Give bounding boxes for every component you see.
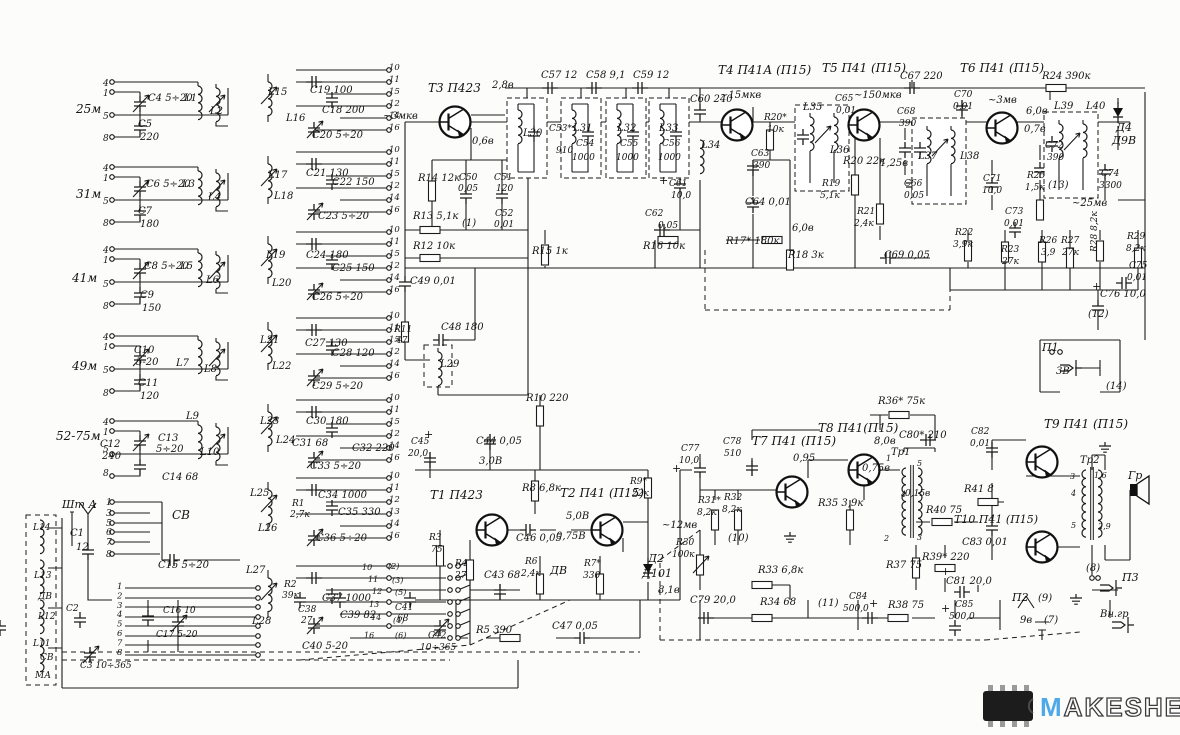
schematic-label: (2) [388,562,399,571]
schematic-label: 3В [1056,366,1070,377]
schematic-label: C22 150 [332,177,375,188]
schematic-label: 16 [389,371,400,381]
schematic-label: ~3мв [988,95,1017,106]
transistor-T10 [1027,532,1058,563]
schematic-label: R19 [821,179,841,189]
schematic-label: L4 [207,192,221,203]
schematic-label: R39* 220 [921,552,970,563]
schematic-label: C57 12 [541,70,577,81]
schematic-label: 0,01 [1127,273,1147,283]
schematic-label: Т7 П41 (П15) [752,434,836,448]
schematic-label: 15 [389,87,400,97]
schematic-label: C2 [66,604,79,614]
schematic-label: C71 [983,174,1001,184]
schematic-label: 1 [103,256,109,266]
schematic-label: C20 5÷20 [312,130,364,141]
schematic-label: 13 [369,600,379,609]
schematic-label: 6,0в [792,223,814,234]
schematic-label: C26 5÷20 [312,292,364,303]
schematic-label: МА [34,671,51,681]
schematic-label: + [941,565,950,578]
schematic-label: L21 [259,335,279,346]
schematic-label: C28 120 [332,348,375,359]
schematic-label: C77 [681,444,700,454]
schematic-label: 180 [140,219,160,230]
schematic-label: C82 [971,427,990,437]
schematic-label: 12 [389,495,400,505]
schematic-label: R29 [1126,232,1146,242]
schematic-label: L33 [658,123,678,134]
schematic-label: 6,0в [1026,106,1048,117]
schematic-label: L1 [183,93,197,104]
schematic-label: L6 [205,275,220,286]
schematic-label: 0,01 [494,220,514,230]
schematic-label: 4 [102,418,109,428]
schematic-label: L2 [209,106,223,117]
schematic-label: 14 [389,273,400,283]
schematic-label: L34 [700,140,720,151]
transistor-T7 [777,477,808,508]
schematic-label: L37 [917,151,938,162]
schematic-label: 5,1к [820,191,840,201]
schematic-label: L20 [271,278,292,289]
schematic-label: L30 [522,128,543,139]
schematic-label: Тр2 [1080,455,1099,466]
schematic-label: 10 [389,393,400,403]
schematic-label: 3 [917,533,922,542]
schematic-label: 12 [389,347,400,357]
schematic-label: R32 [723,493,743,503]
schematic-label: 14 [389,359,400,369]
schematic-label: 4 [1070,489,1076,498]
schematic-label: 8 [103,302,109,312]
schematic-label: (3) [392,576,403,585]
schematic-label: C80* 210 [899,430,947,441]
schematic-label: C63 [751,149,770,159]
schematic-label: C78 [723,437,742,447]
schematic-label: R26 [1038,236,1058,246]
schematic-label: 1 [106,498,112,508]
schematic-label: R15 1к [531,246,568,257]
schematic-label: 16 [364,631,374,640]
schematic-label: + [869,597,878,610]
schematic-label: C49 0,01 [410,276,456,287]
schematic-label: 1 [103,89,109,99]
watermark-text: MAKESHEMA [1040,692,1180,722]
schematic-label: 1000 [616,153,639,163]
schematic-label: 14 [389,519,400,529]
schematic-label: C58 9,1 [586,70,625,81]
schematic-page: 25м31м41м49м52-75мСВДВC4 5÷20L1L2C5220C6… [0,0,1180,735]
schematic-label: C24 180 [306,250,349,261]
schematic-label: 510 [724,449,741,459]
schematic-label: C52 [495,209,514,219]
schematic-label: 4 [102,79,109,89]
schematic-label: L28 [251,616,271,627]
schematic-label: Т8 П41(П15) [818,421,899,435]
schematic-label: L5 [179,261,193,272]
schematic-label: 15 [389,417,400,427]
schematic-label: C61 [669,179,687,189]
schematic-label: R21 [856,207,875,217]
schematic-label: 14 [389,193,400,203]
schematic-label: C72 [1045,141,1064,151]
schematic-label: C46 0,05 [516,533,562,544]
schematic-label: 6 [106,528,112,538]
schematic-label: 5-20 [136,357,159,368]
schematic-label: R9* [629,477,648,487]
schematic-label: (7) [1044,615,1058,626]
schematic-label: 0,05 [458,184,478,194]
schematic-label: 1,5к [1025,183,1045,193]
schematic-label: 41м [71,271,97,285]
schematic-label: C18 200 [322,105,365,116]
schematic-label: 10,0 [671,191,691,201]
schematic-label: ~12мв [662,520,697,531]
schematic-label: 12 [389,99,400,109]
schematic-label: 3300 [1099,181,1122,191]
schematic-label: 16 [389,285,400,295]
schematic-label: Гр [1127,469,1142,482]
schematic-label: 27к [1061,248,1079,258]
schematic-label: C59 12 [633,70,669,81]
schematic-label: 12 [76,542,89,553]
schematic-label: 390 [1047,153,1064,163]
schematic-label: R4 [454,559,468,569]
schematic-label: C13 [158,433,178,444]
transistor-T2 [592,515,623,546]
schematic-label: L17 [267,170,288,181]
schematic-label: Т9 П41 (П15) [1044,417,1128,431]
schematic-label: 10 [362,563,372,572]
schematic-label: Д9В [1111,134,1136,147]
schematic-label: C44 0,05 [476,436,522,447]
schematic-label: + [1092,280,1101,293]
schematic-label: L13 [33,571,52,581]
schematic-label: Т6 П41 (П15) [960,61,1044,75]
schematic-label: 4 [102,333,109,343]
schematic-label: 0,15в [905,489,930,499]
schematic-label: 10÷365 [420,643,456,653]
schematic-label: 13 [389,507,400,517]
schematic-label: (5) [395,588,406,597]
schematic-label: 14 [389,441,400,451]
schematic-label: 14 [371,613,381,622]
schematic-label: R7* [583,559,602,569]
schematic-label: Тр1 [891,447,910,458]
schematic-label: R33 6,8к [757,565,803,576]
schematic-label: R10 220 [525,393,569,404]
schematic-label: 27к [1001,257,1019,267]
schematic-label: 5 [917,459,922,468]
schematic-label: C55 [620,139,639,149]
connector-P3 [1100,580,1122,596]
transistor-T9 [1027,447,1058,478]
schematic-label: L24 [275,435,295,446]
schematic-label: 8 [103,389,109,399]
schematic-label: R41 8 [963,484,994,495]
schematic-label: 1000 [572,153,595,163]
schematic-label: C81 20,0 [946,576,992,587]
schematic-label: (6) [395,631,406,640]
schematic-label: (14) [1106,381,1127,392]
schematic-label: C53* [549,124,572,134]
schematic-label: C17 5-20 [156,630,198,640]
schematic-label: L27 [245,565,266,576]
diode-D4 [1113,102,1123,123]
schematic-label: 0,6в [472,136,494,147]
schematic-label: C84 [849,592,868,602]
schematic-label: C37 1000 [322,593,372,604]
schematic-label: 31м [76,187,101,201]
schematic-label: R34 68 [759,597,796,608]
schematic-label: C64 0,01 [745,197,791,208]
schematic-label: C47 0,05 [552,621,598,632]
schematic-label: L39 [1053,101,1074,112]
schematic-label: 2,9 [1097,522,1111,531]
schematic-label: 39к [282,591,299,601]
schematic-label: 27 [454,571,467,581]
schematic-label: L26 [257,523,278,534]
schematic-label: C50 [459,173,478,183]
schematic-label: R36* 75к [877,396,925,407]
schematic-label: (4) [393,616,404,625]
schematic-label: C70 [954,90,973,100]
schematic-label: ~25мв [1072,198,1107,209]
schematic-label: C16 10 [163,606,196,616]
schematic-label: C68 [897,107,916,117]
schematic-label: 8 [103,469,109,479]
schematic-label: L35 [802,102,822,113]
schematic-label: R20* [763,113,787,123]
schematic-label: L16 [285,113,306,124]
schematic-label: 12 [389,429,400,439]
schematic-label: L18 [273,191,293,202]
schematic-label: C69 0,05 [884,250,930,261]
schematic-label: + [659,174,668,187]
schematic-label: 12 [389,261,400,271]
schematic-label: 5 [103,112,109,122]
schematic-label: R18 3к [787,250,824,261]
schematic-label: 1000 [658,153,681,163]
schematic-label: 10 [389,311,400,321]
schematic-label: R31* [697,496,721,506]
schematic-label: 8 [103,219,109,229]
schematic-label: C31 68 [292,438,328,449]
schematic-label: 1 [103,174,109,184]
schematic-label: 0,01 [970,439,990,449]
schematic-label: Д4 [1115,121,1132,134]
schematic-label: 5 [103,197,109,207]
schematic-label: 5 [1071,521,1076,530]
schematic-label: R25 [1026,171,1046,181]
schematic-label: L14 [32,523,51,533]
schematic-label: C11 [138,378,158,389]
schematic-label: 500,0 [843,604,869,614]
schematic-label: 16 [389,531,400,541]
schematic-label: R1 [291,499,305,509]
schematic-label: C41 [395,603,413,613]
schematic-label: 5 [103,445,109,455]
schematic-label: 4 [102,246,109,256]
schematic-label: L19 [265,250,286,261]
schematic-label: Д2 [647,552,664,565]
schematic-label: 75 [431,545,443,555]
schematic-label: 16 [389,123,400,133]
schematic-label: 14 [389,111,400,121]
schematic-label: R28 8,2к [1090,211,1100,253]
schematic-label: L10 [199,447,220,458]
schematic-label: L23 [259,416,279,427]
schematic-label: 120 [496,184,513,194]
schematic-label: C30 180 [306,416,349,427]
schematic-label: Т5 П41 (П15) [822,61,906,75]
schematic-label: Шт А [61,498,97,511]
schematic-label: R37 75 [885,560,922,571]
schematic-label: 0,05 [904,191,924,201]
schematic-label: СВ [40,653,54,663]
schematic-label: 10к [767,125,784,135]
schematic-label: R23 [1000,245,1020,255]
schematic-label: 11 [389,75,400,85]
transistor-T6 [987,113,1018,144]
schematic-label: L38 [959,151,979,162]
schematic-label: C15 5÷20 [158,560,210,571]
schematic-label: 11 [368,575,378,584]
schematic-canvas: 25м31м41м49м52-75мСВДВC4 5÷20L1L2C5220C6… [0,0,1180,735]
schematic-label: (9) [1038,593,1052,604]
schematic-label: C23 5÷20 [318,211,370,222]
schematic-label: 10,0 [679,456,699,466]
schematic-label: 8 [103,134,109,144]
schematic-label: C14 68 [162,472,198,483]
schematic-label: C73 [1005,207,1024,217]
watermark: MAKESHEMA [983,685,1180,727]
schematic-label: 5 [103,280,109,290]
schematic-label: СВ [172,508,190,522]
schematic-label: C56 [662,139,681,149]
schematic-label: 25м [75,102,101,116]
schematic-label: 16 [389,453,400,463]
schematic-label: ДВ [549,564,567,577]
schematic-label: Т4 П41А (П15) [718,63,812,77]
schematic-label: R12 10к [412,241,455,252]
schematic-label: C7 [138,206,153,217]
schematic-label: 0,7в [1024,124,1046,135]
schematic-label: 500,0 [949,612,975,622]
schematic-label: 15 [389,169,400,179]
schematic-label: R27 [1060,236,1080,246]
schematic-label: Т1 П423 [430,488,483,502]
schematic-label: L40 [1085,101,1106,112]
schematic-label: 1 [103,428,109,438]
schematic-label: П1 [1041,341,1059,354]
schematic-label: 11 [389,237,400,247]
schematic-label: 0,01 [1004,219,1024,229]
schematic-label: 8,1в [658,585,680,596]
schematic-label: 3 [106,509,112,519]
schematic-label: (13) [1048,180,1069,191]
schematic-label: Т3 П423 [428,81,481,95]
schematic-label: 1,6 [1094,471,1107,480]
schematic-label: R22 [954,228,974,238]
schematic-label: 27 [300,616,313,626]
schematic-label: L12 [37,612,56,622]
schematic-label: 3,0В [479,456,502,467]
schematic-label: (10) [728,533,749,544]
schematic-label: L9 [185,411,200,422]
schematic-label: 390 [753,161,770,171]
schematic-label: R2 [283,580,297,590]
schematic-label: R5 390 [475,625,513,636]
schematic-label: R38 75 [887,600,924,611]
schematic-label: R20 22к [842,156,885,167]
schematic-label: 2 [883,534,889,543]
schematic-label: C67 220 [900,71,943,82]
schematic-label: 9в [1020,615,1032,626]
schematic-label: C19 100 [310,85,353,96]
transistor-T4 [722,110,753,141]
schematic-label: 0,95 [793,453,815,464]
schematic-label: ДВ [37,592,52,602]
schematic-label: 5 [103,366,109,376]
schematic-label: 1,25в [880,158,908,169]
schematic-label: R16 10к [642,241,685,252]
schematic-label: 2,8в [491,80,514,91]
schematic-label: L11 [32,639,50,649]
schematic-label: C54 [576,139,595,149]
schematic-label: 220 [139,132,160,143]
schematic-label: 390 [899,119,916,129]
schematic-label: L3 [181,179,195,190]
schematic-label: 0,75в [862,463,890,474]
schematic-label: C10 [134,345,155,356]
schematic-label: R13 5,1к [412,211,458,222]
schematic-label: 11 [389,483,400,493]
schematic-label: L25 [249,488,269,499]
schematic-label: 3,9 [1041,248,1056,258]
schematic-label: C42 [428,631,447,641]
schematic-label: 8,2к [722,505,742,515]
schematic-label: 22к [631,489,649,499]
schematic-label: (8) [1086,563,1100,574]
schematic-label: C40 5-20 [302,641,349,652]
schematic-label: (11) [818,598,839,609]
schematic-label: 5,0В [566,511,589,522]
schematic-label: 20,0 [407,449,428,459]
schematic-label: L7 [175,358,190,369]
schematic-label: 11 [389,323,400,333]
schematic-label: L31 [572,123,592,134]
schematic-label: L32 [616,123,636,134]
schematic-label: 8 [117,648,123,658]
schematic-label: 16 [389,205,400,215]
schematic-label: Д101 [641,567,672,580]
schematic-label: C66 [904,179,923,189]
schematic-label: C33 5÷20 [310,461,362,472]
schematic-label: C51 [494,173,512,183]
schematic-label: 3,9к [953,240,973,250]
schematic-label: C9 [140,290,155,301]
schematic-label: R3 [428,533,442,543]
schematic-label: 1 [886,454,891,463]
schematic-label: 910 [556,146,573,156]
schematic-label: C29 5÷20 [312,381,364,392]
schematic-label: R24 390к [1041,71,1091,82]
schematic-label: C5 [138,119,152,130]
schematic-label: C34 1000 [318,490,368,501]
schematic-label: C3 10÷365 [80,661,132,671]
